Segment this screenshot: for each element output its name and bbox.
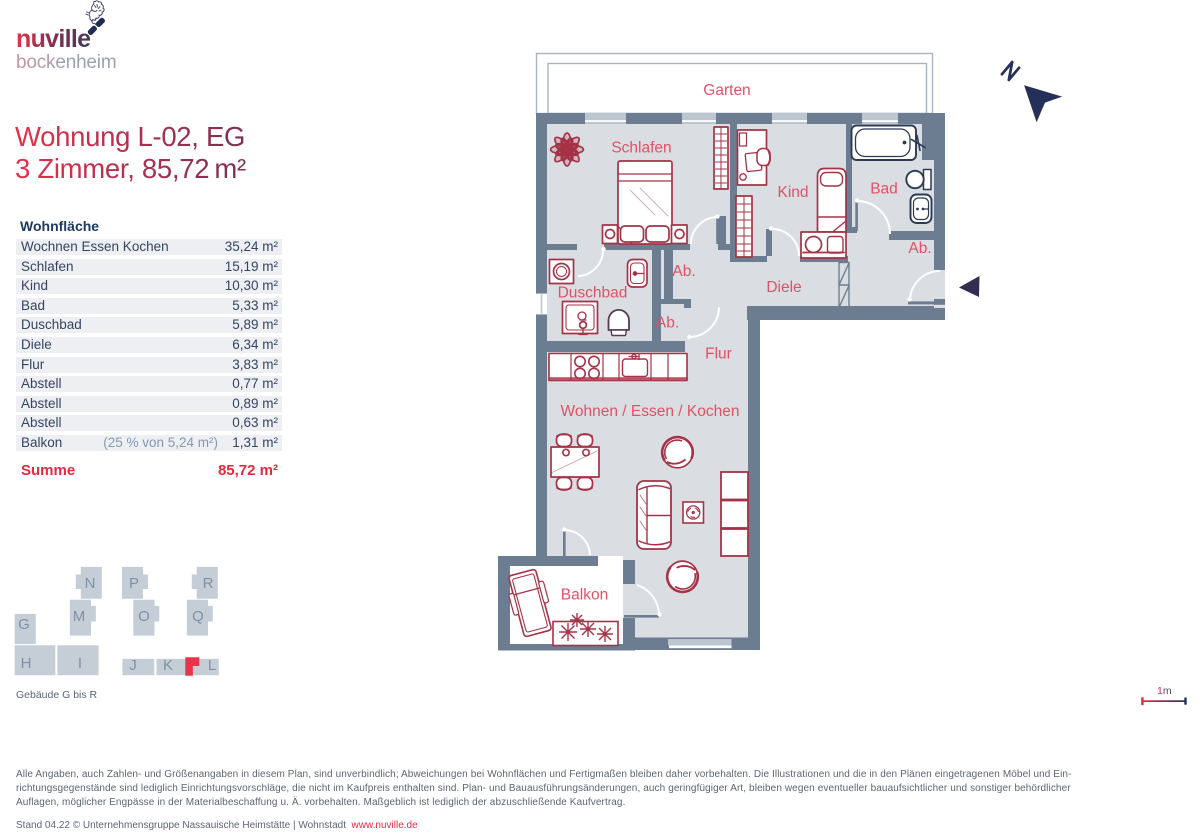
svg-text:Schlafen: Schlafen bbox=[611, 140, 671, 157]
svg-text:Wohnen / Essen / Kochen: Wohnen / Essen / Kochen bbox=[561, 403, 740, 420]
svg-text:Garten: Garten bbox=[703, 82, 750, 99]
svg-text:Ab.: Ab. bbox=[672, 263, 695, 280]
svg-text:Kind: Kind bbox=[777, 184, 808, 201]
svg-text:Ab.: Ab. bbox=[656, 315, 679, 332]
svg-text:Bad: Bad bbox=[870, 181, 898, 198]
svg-text:1m: 1m bbox=[1157, 685, 1172, 697]
svg-text:Duschbad: Duschbad bbox=[558, 285, 628, 302]
svg-text:Balkon: Balkon bbox=[561, 587, 608, 604]
svg-text:Flur: Flur bbox=[705, 346, 732, 363]
svg-text:Ab.: Ab. bbox=[908, 240, 931, 257]
svg-text:Diele: Diele bbox=[766, 279, 801, 296]
